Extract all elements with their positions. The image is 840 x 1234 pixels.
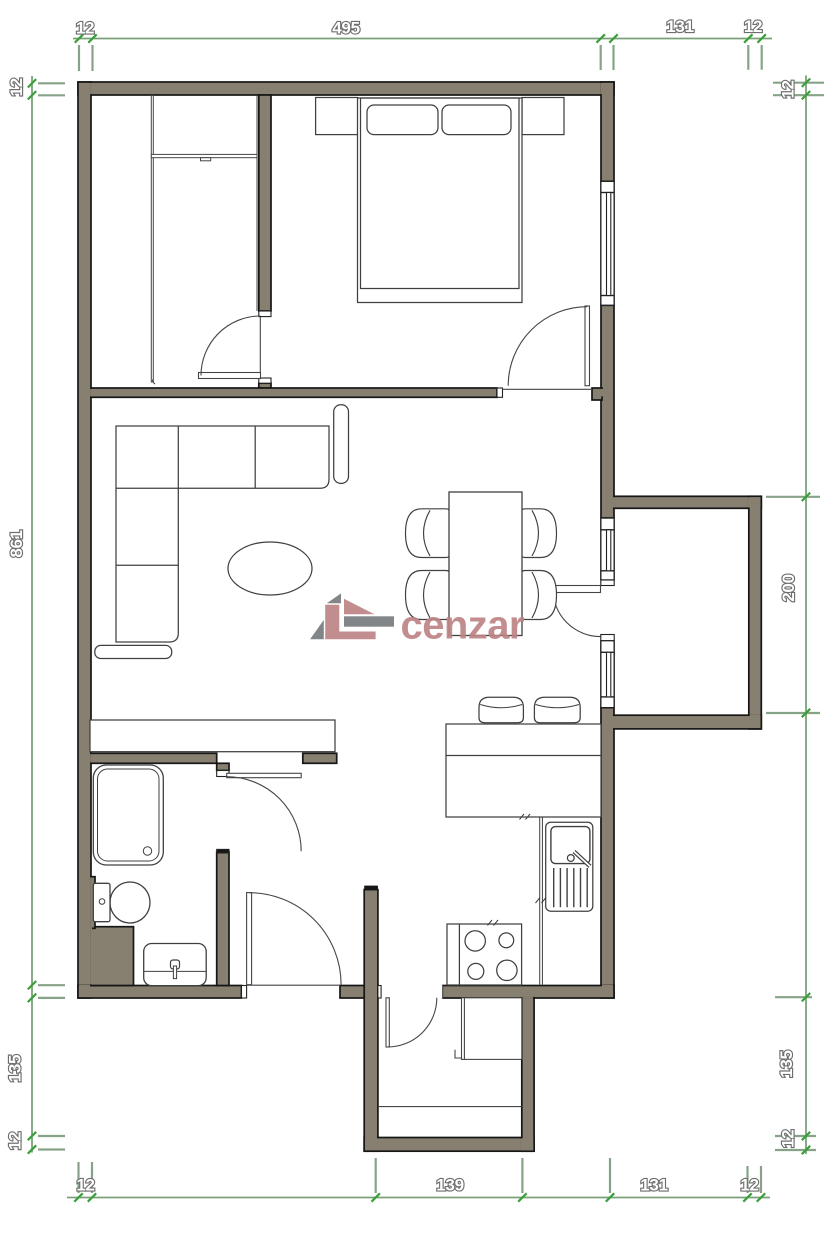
- svg-text:12: 12: [7, 78, 26, 96]
- svg-text:861: 861: [7, 530, 26, 557]
- svg-text:200: 200: [779, 574, 798, 601]
- svg-text:12: 12: [76, 19, 94, 38]
- svg-text:131: 131: [666, 17, 693, 36]
- svg-text:139: 139: [436, 1176, 463, 1195]
- svg-text:12: 12: [744, 17, 762, 36]
- svg-text:495: 495: [332, 19, 359, 38]
- svg-text:135: 135: [777, 1050, 796, 1077]
- svg-text:12: 12: [76, 1176, 94, 1195]
- svg-text:135: 135: [6, 1055, 25, 1082]
- svg-text:131: 131: [640, 1176, 667, 1195]
- svg-text:12: 12: [779, 1130, 798, 1148]
- svg-text:12: 12: [779, 80, 798, 98]
- svg-text:12: 12: [740, 1176, 758, 1195]
- svg-text:12: 12: [6, 1132, 25, 1150]
- svg-text:cenzar: cenzar: [401, 604, 525, 648]
